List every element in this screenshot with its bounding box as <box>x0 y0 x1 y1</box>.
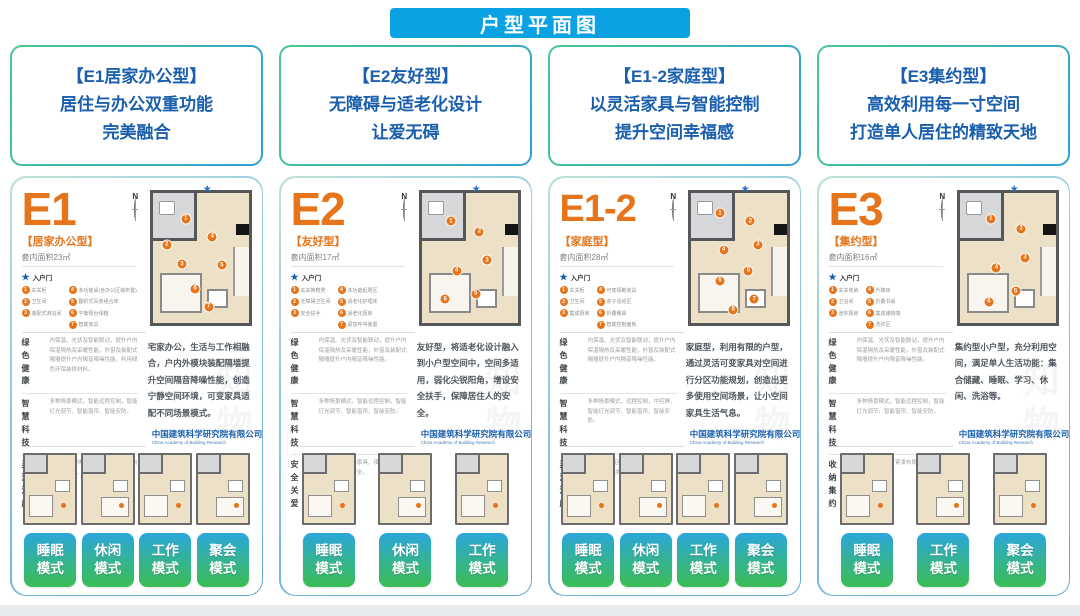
legend-text: 可变隔断家具 <box>607 287 637 294</box>
main-floorplan: ★ 12345678 <box>688 190 789 326</box>
thumbnail-tbl <box>228 480 243 492</box>
legend-number: 1 <box>291 286 299 294</box>
legend-number: 6 <box>866 309 874 317</box>
legend-number: 3 <box>22 309 30 317</box>
section-label-line2: 科 技 <box>829 425 839 447</box>
thumbnail-bed <box>846 495 870 517</box>
legend-item: 7智能家具 <box>69 321 137 329</box>
thumbnail-bed <box>754 497 782 517</box>
mode-badge: 休闲模式 <box>82 533 134 587</box>
thumbnail-dot <box>772 503 777 508</box>
plan-entry-star-icon: ★ <box>1010 185 1019 195</box>
legend-item: 3集成厨房 <box>560 309 590 317</box>
thumbnail-tbl <box>410 480 425 492</box>
intro-card-line: 打造单人居住的精致天地 <box>850 122 1037 145</box>
legend-item: 1玄关换鞋凳 <box>291 286 331 294</box>
legend-number: 7 <box>866 321 874 329</box>
mode-badge: 睡眠模式 <box>841 533 893 587</box>
section-label-line1: 绿 色 <box>22 338 32 360</box>
section-label: 智 慧 科 技 <box>560 398 584 449</box>
section-text: 多种情景模式，智能远程控制，智能灯光调节、智能窗帘、智能安防。 <box>857 398 946 449</box>
mode-badge-label: 工作 <box>930 542 957 560</box>
compass-circle <box>672 200 674 219</box>
intro-card-title: 【E2友好型】 <box>353 66 459 89</box>
compass-circle <box>134 200 136 219</box>
section-label: 绿 色 健 康 <box>22 337 46 388</box>
panel-right-column: 友好型，将适老化设计融入到小户型空间中，空间多适用，弱化尖锐阳角，增设安全扶手，… <box>415 332 521 447</box>
thumbnail-bed <box>216 497 244 517</box>
legend-number: 4 <box>597 286 605 294</box>
legend-column-left: 1玄关柜2卫生间3集成厨房 <box>560 286 590 329</box>
plan-marker: 1 <box>986 214 995 223</box>
section-label-line1: 绿 色 <box>829 338 839 360</box>
thumbnail-bath <box>140 455 163 475</box>
legend-text: 平衡阳台绿植 <box>79 310 109 317</box>
plan-marker: 3 <box>1021 253 1030 262</box>
intro-card-line: 居住与办公双重功能 <box>60 94 213 117</box>
mode-badge-suffix: 模式 <box>853 560 880 578</box>
legend-text: 多功能桌(含办公区域布置) <box>79 287 137 294</box>
plan-entry-star-icon: ★ <box>203 185 212 195</box>
mode-badge-label: 睡眠 <box>315 542 342 560</box>
legend-item: 1玄关柜 <box>560 286 590 294</box>
legend-item: 5适老化护理床 <box>338 298 378 306</box>
plan-marker: 3 <box>177 260 186 269</box>
compass-circle <box>941 200 943 219</box>
floorplan-thumbnails <box>829 453 1059 525</box>
thumbnail-bath <box>304 455 327 475</box>
legend-number: 7 <box>597 321 605 329</box>
panel-middle: 绿 色 健 康 内保温、光伏及智能联动，提升户内保温隔热及采暖性能，外窗及装配式… <box>829 332 1059 447</box>
entry-star-icon: ★ <box>560 273 568 282</box>
legend-text: 折叠书桌 <box>876 298 896 305</box>
plan-marker: 1 <box>446 217 455 226</box>
entry-star-icon: ★ <box>829 273 837 282</box>
page-title-banner: 户型平面图 <box>390 8 690 38</box>
section-label: 绿 色 健 康 <box>291 337 315 388</box>
thumbnail-bed <box>101 497 129 517</box>
mode-badge-label: 休闲 <box>392 542 419 560</box>
thumbnail-bath <box>457 455 480 475</box>
panel-area: 套内面积28㎡ <box>560 252 674 267</box>
legend-number: 7 <box>69 321 77 329</box>
floorplan-thumbnail <box>993 453 1047 525</box>
panel-middle: 绿 色 健 康 内保温、光伏及智能联动，提升户内保温隔热及采暖性能，外窗及装配式… <box>560 332 790 447</box>
plan-marker: 1 <box>715 209 724 218</box>
floorplan-panel-body: 知物 E1-2 【家庭型】 套内面积28㎡ ★ 入户门 1玄关柜2卫生间3集成厨… <box>550 178 800 595</box>
mode-badge-suffix: 模式 <box>209 560 236 578</box>
org-name-cn: 中国建筑科学研究院有限公司 <box>690 430 800 440</box>
entry-label: 入户门 <box>33 272 53 282</box>
section-label: 绿 色 健 康 <box>560 337 584 388</box>
intro-card-line: 让爱无碍 <box>372 122 440 145</box>
legend-item: 1玄关收纳 <box>829 286 859 294</box>
mode-badge: 工作模式 <box>677 533 729 587</box>
panel-description: 友好型，将适老化设计融入到小户型空间中，空间多适用，弱化尖锐阳角，增设安全扶手，… <box>417 339 521 422</box>
intro-card: 【E2友好型】 无障碍与适老化设计 让爱无碍 <box>279 45 532 166</box>
entry-label: 入户门 <box>571 272 591 282</box>
legend-text: 多功能起居区 <box>348 287 378 294</box>
plan-marker: 4 <box>992 263 1001 272</box>
entry-row: ★ 入户门 <box>291 272 415 282</box>
legend-item: 4可变隔断家具 <box>597 286 637 294</box>
mode-badge: 睡眠模式 <box>303 533 355 587</box>
main-floorplan: ★ 1234567 <box>150 190 251 326</box>
legend-item: 7紧急呼叫装置 <box>338 321 378 329</box>
mode-badge-label: 聚会 <box>747 542 774 560</box>
panel-subtitle: 【集约型】 <box>829 233 953 249</box>
plan-bathroom <box>422 193 466 242</box>
thumbnail-bath <box>563 455 586 475</box>
legend-number: 2 <box>291 298 299 306</box>
legend-item: 2无障碍卫生间 <box>291 298 331 306</box>
legend-text: 升降床 <box>876 287 891 294</box>
section-text: 内保温、光伏及智能联动，提升户内保温隔热及采暖性能，外窗及装配式隔墙提升户内隔音… <box>50 337 139 388</box>
legend-item: 3迷你厨房 <box>829 309 859 317</box>
legend-text: 智能控制面板 <box>607 321 637 328</box>
mode-badge-suffix: 模式 <box>469 560 496 578</box>
section-label-line2: 科 技 <box>291 425 301 447</box>
thumbnail-dot <box>878 503 883 508</box>
main-floorplan: ★ 123456 <box>957 190 1058 326</box>
legend-number: 5 <box>866 298 874 306</box>
section-row: 绿 色 健 康 内保温、光伏及智能联动，提升户内保温隔热及采暖性能，外窗及装配式… <box>291 333 408 393</box>
plan-marker: 5 <box>217 261 226 270</box>
plan-entry-star-icon: ★ <box>472 185 481 195</box>
panel-subtitle: 【家庭型】 <box>560 233 684 249</box>
org-logo-text: 中国建筑科学研究院有限公司 China Academy of Building … <box>959 430 1069 446</box>
section-text: 内保温、光伏及智能联动，提升户内保温隔热及采暖性能，外窗及装配式隔墙提升户内隔音… <box>588 337 677 388</box>
intro-card-body: 【E1居家办公型】 居住与办公双重功能 完美融合 <box>12 47 261 164</box>
panel-right-column: 集约型小户型，充分利用空间，满足单人生活功能：集合储藏、睡眠、学习、休闲、洗浴等… <box>953 332 1059 447</box>
compass-icon: N <box>396 192 412 219</box>
thumbnail-tbl <box>170 480 185 492</box>
plan-marker: 7 <box>204 302 213 311</box>
mode-badge: 工作模式 <box>139 533 191 587</box>
panel-right-column: 宅家办公，生活与工作相融合，户内外模块装配隔墙提升空间隔音降噪性能，创造宁静空间… <box>146 332 252 447</box>
mode-badge-suffix: 模式 <box>94 560 121 578</box>
thumbnail-dot <box>1031 503 1036 508</box>
legend-number: 4 <box>69 286 77 294</box>
intro-card: 【E3集约型】 高效利用每一寸空间 打造单人居住的精致天地 <box>817 45 1070 166</box>
legend-text: 迷你厨房 <box>839 310 859 317</box>
plan-marker: 4 <box>719 245 728 254</box>
legend-number: 4 <box>866 286 874 294</box>
legend-number: 3 <box>829 309 837 317</box>
legend-number: 6 <box>597 309 605 317</box>
legend-text: 适老化护理床 <box>348 298 378 305</box>
mode-badges: 睡眠模式休闲模式工作模式 <box>291 533 521 587</box>
panel-description: 宅家办公，生活与工作相融合，户内外模块装配隔墙提升空间隔音降噪性能，创造宁静空间… <box>148 339 252 422</box>
compass-circle <box>403 200 405 219</box>
section-label-line2: 科 技 <box>22 425 32 447</box>
section-label-line1: 智 慧 <box>829 399 839 421</box>
mode-badge: 工作模式 <box>456 533 508 587</box>
legend-item: 1玄关柜 <box>22 286 62 294</box>
org-logo: 中国建筑科学研究院有限公司 China Academy of Building … <box>417 430 521 447</box>
mode-badge-suffix: 模式 <box>930 560 957 578</box>
org-logo: 中国建筑科学研究院有限公司 China Academy of Building … <box>955 430 1059 447</box>
thumbnail-bed <box>639 497 667 517</box>
org-logo-text: 中国建筑科学研究院有限公司 China Academy of Building … <box>152 430 262 446</box>
legend-text: 集成厨房 <box>570 310 590 317</box>
legend-number: 1 <box>829 286 837 294</box>
section-text: 多种情景模式，智能远程控制，智能灯光调节、智能窗帘、智能安防。 <box>319 398 408 449</box>
entry-row: ★ 入户门 <box>829 272 953 282</box>
legend-number: 7 <box>338 321 346 329</box>
plan-legend: ★ 入户门 1玄关柜2卫生间3集成厨房 4可变隔断家具5亲子活动区6折叠餐桌7智… <box>560 272 684 329</box>
floorplan-panel: 知物 E3 【集约型】 套内面积16㎡ ★ 入户门 1玄关收纳2卫浴间3迷你厨房… <box>817 176 1070 596</box>
mode-badge-label: 聚会 <box>209 542 236 560</box>
mode-badges: 睡眠模式休闲模式工作模式聚会模式 <box>560 533 790 587</box>
mode-badges: 睡眠模式休闲模式工作模式聚会模式 <box>22 533 252 587</box>
legend-number: 2 <box>829 298 837 306</box>
legend-text: 翻折式百变组合床 <box>79 298 119 305</box>
intro-card-body: 【E3集约型】 高效利用每一寸空间 打造单人居住的精致天地 <box>819 47 1068 164</box>
thumbnail-bed <box>682 495 706 517</box>
mode-badge-label: 聚会 <box>1007 542 1034 560</box>
thumbnail-bed <box>936 497 964 517</box>
floorplan-panel-body: 知物 E1 【居家办公型】 套内面积23㎡ ★ 入户门 1玄关柜2卫生间3装配式… <box>12 178 262 595</box>
org-name-en: China Academy of Building Research <box>421 440 531 445</box>
org-name-cn: 中国建筑科学研究院有限公司 <box>959 430 1069 440</box>
compass-icon: N <box>665 192 681 219</box>
panel-description: 家庭型，利用有限的户型，通过灵活可变家具对空间进行分区功能规划，创造出更多使用空… <box>686 339 790 422</box>
mode-badge-suffix: 模式 <box>575 560 602 578</box>
floorplan-panel-body: 知物 E2 【友好型】 套内面积17㎡ ★ 入户门 1玄关换鞋凳2无障碍卫生间3… <box>281 178 531 595</box>
thumbnail-tbl <box>1025 480 1040 492</box>
thumbnail-dot <box>234 503 239 508</box>
floorplan-thumbnail <box>81 453 135 525</box>
legend-item: 4升降床 <box>866 286 901 294</box>
thumbnail-bath <box>83 455 106 475</box>
plan-balcony <box>502 247 517 296</box>
section-label-line1: 智 慧 <box>560 399 570 421</box>
legend-item: 7智能控制面板 <box>597 321 637 329</box>
plan-marker: 4 <box>452 266 461 275</box>
legend-item: 6集成储物墙 <box>866 309 901 317</box>
section-label-line1: 绿 色 <box>291 338 301 360</box>
legend-text: 装配式淋浴间 <box>32 310 62 317</box>
legend-number: 3 <box>560 309 568 317</box>
section-row: 绿 色 健 康 内保温、光伏及智能联动，提升户内保温隔热及采暖性能，外窗及装配式… <box>560 333 677 393</box>
legend-text: 集成储物墙 <box>876 310 901 317</box>
mode-badges: 睡眠模式工作模式聚会模式 <box>829 533 1059 587</box>
section-text: 内保温、光伏及智能联动，提升户内保温隔热及采暖性能，外窗及装配式隔墙提升户内隔音… <box>319 337 408 388</box>
plan-shaft <box>1043 224 1055 236</box>
section-row: 智 慧 科 技 多种情景模式，远程控制，中控屏、智能灯光调节、智能窗帘、智能安防… <box>560 393 677 454</box>
thumbnail-bath <box>380 455 403 475</box>
mode-badge-suffix: 模式 <box>690 560 717 578</box>
legend-item: 6平衡阳台绿植 <box>69 309 137 317</box>
legend-number: 1 <box>560 286 568 294</box>
intro-card-title: 【E1居家办公型】 <box>67 66 207 89</box>
intro-card-title: 【E3集约型】 <box>891 66 997 89</box>
mode-badge-label: 休闲 <box>632 542 659 560</box>
thumbnail-dot <box>176 503 181 508</box>
section-label-line2: 健 康 <box>291 364 301 386</box>
plan-marker: 7 <box>750 295 759 304</box>
legend-column-right: 4多功能桌(含办公区域布置)5翻折式百变组合床6平衡阳台绿植7智能家具 <box>69 286 137 329</box>
floorplan-panel: 知物 E1-2 【家庭型】 套内面积28㎡ ★ 入户门 1玄关柜2卫生间3集成厨… <box>548 176 801 596</box>
mode-badge-suffix: 模式 <box>747 560 774 578</box>
org-logo: 中国建筑科学研究院有限公司 China Academy of Building … <box>686 430 790 447</box>
thumbnail-bath <box>995 455 1018 475</box>
floorplan-thumbnail <box>302 453 356 525</box>
legend-number: 2 <box>560 298 568 306</box>
panel-description: 集约型小户型，充分利用空间，满足单人生活功能：集合储藏、睡眠、学习、休闲、洗浴等… <box>955 339 1059 405</box>
feature-sections: 绿 色 健 康 内保温、光伏及智能联动，提升户内保温隔热及采暖性能，外窗及装配式… <box>22 332 146 447</box>
org-logo: 中国建筑科学研究院有限公司 China Academy of Building … <box>148 430 252 447</box>
floorplan-panel: 知物 E2 【友好型】 套内面积17㎡ ★ 入户门 1玄关换鞋凳2无障碍卫生间3… <box>279 176 532 596</box>
plan-marker: 5 <box>471 289 480 298</box>
legend-number: 6 <box>338 309 346 317</box>
intro-card-line: 提升空间幸福感 <box>615 122 734 145</box>
floorplan-thumbnail <box>561 453 615 525</box>
legend-number: 1 <box>22 286 30 294</box>
thumbnail-tbl <box>113 480 128 492</box>
thumbnail-dot <box>493 503 498 508</box>
thumbnail-tbl <box>487 480 502 492</box>
plan-marker: 5 <box>1011 287 1020 296</box>
thumbnail-bath <box>918 455 941 475</box>
plan-marker: 6 <box>191 284 200 293</box>
thumbnail-tbl <box>766 480 781 492</box>
mode-badge-label: 睡眠 <box>853 542 880 560</box>
section-label: 智 慧 科 技 <box>22 398 46 449</box>
mode-badge: 休闲模式 <box>620 533 672 587</box>
plan-marker: 6 <box>441 295 450 304</box>
section-label-line2: 健 康 <box>829 364 839 386</box>
thumbnail-tbl <box>55 480 70 492</box>
section-text: 多种情景模式，智能远程控制，智能灯光调节、智能窗帘、智能安防。 <box>50 398 139 449</box>
section-row: 绿 色 健 康 内保温、光伏及智能联动，提升户内保温隔热及采暖性能，外窗及装配式… <box>829 333 946 393</box>
thumbnail-dot <box>714 503 719 508</box>
thumbnail-tbl <box>593 480 608 492</box>
plan-marker: 6 <box>984 297 993 306</box>
intro-card-body: 【E1-2家庭型】 以灵活家具与智能控制 提升空间幸福感 <box>550 47 799 164</box>
mode-badge-suffix: 模式 <box>392 560 419 578</box>
mode-badge-label: 睡眠 <box>575 542 602 560</box>
thumbnail-dot <box>599 503 604 508</box>
thumbnail-bath <box>736 455 759 475</box>
section-label-line1: 智 慧 <box>22 399 32 421</box>
mode-badge-suffix: 模式 <box>152 560 179 578</box>
org-name-cn: 中国建筑科学研究院有限公司 <box>421 430 531 440</box>
floorplan-panel-row: 知物 E1 【居家办公型】 套内面积23㎡ ★ 入户门 1玄关柜2卫生间3装配式… <box>0 176 1080 596</box>
plan-balcony <box>233 247 248 296</box>
intro-card: 【E1-2家庭型】 以灵活家具与智能控制 提升空间幸福感 <box>548 45 801 166</box>
legend-number: 5 <box>597 298 605 306</box>
mode-badge-suffix: 模式 <box>1007 560 1034 578</box>
mode-badge: 休闲模式 <box>379 533 431 587</box>
plan-marker: 2 <box>475 227 484 236</box>
legend-text: 亲子活动区 <box>607 298 632 305</box>
thumbnail-bed <box>461 495 485 517</box>
thumbnail-dot <box>340 503 345 508</box>
plan-bed <box>429 273 471 313</box>
mode-badge-label: 工作 <box>469 542 496 560</box>
thumbnail-bath <box>678 455 701 475</box>
plan-bathroom <box>960 193 1004 242</box>
intro-card-line: 以灵活家具与智能控制 <box>590 94 760 117</box>
plan-marker: 3 <box>753 240 762 249</box>
panel-area: 套内面积16㎡ <box>829 252 943 267</box>
plan-legend: ★ 入户门 1玄关收纳2卫浴间3迷你厨房 4升降床5折叠书桌6集成储物墙7洗衣区 <box>829 272 953 329</box>
intro-card: 【E1居家办公型】 居住与办公双重功能 完美融合 <box>10 45 263 166</box>
legend-text: 玄关换鞋凳 <box>301 287 326 294</box>
compass-icon: N <box>934 192 950 219</box>
intro-card-line: 完美融合 <box>103 122 171 145</box>
plan-balcony <box>771 247 786 296</box>
legend-column-left: 1玄关换鞋凳2无障碍卫生间3安全扶手 <box>291 286 331 329</box>
plan-marker: 3 <box>483 256 492 265</box>
panel-middle: 绿 色 健 康 内保温、光伏及智能联动，提升户内保温隔热及采暖性能，外窗及装配式… <box>22 332 252 447</box>
section-text: 多种情景模式，远程控制，中控屏、智能灯光调节、智能窗帘、智能安防。 <box>588 398 677 449</box>
legend-item: 3安全扶手 <box>291 309 331 317</box>
section-label-line2: 健 康 <box>22 364 32 386</box>
plan-marker: 2 <box>1017 224 1026 233</box>
panel-subtitle: 【友好型】 <box>291 233 415 249</box>
panel-header: E2 【友好型】 套内面积17㎡ ★ 入户门 1玄关换鞋凳2无障碍卫生间3安全扶… <box>291 188 521 328</box>
main-floorplan: ★ 123456 <box>419 190 520 326</box>
mode-badge: 聚会模式 <box>735 533 787 587</box>
legend-number: 2 <box>22 298 30 306</box>
floorplan-thumbnails <box>560 453 790 525</box>
intro-card-row: 【E1居家办公型】 居住与办公双重功能 完美融合 【E2友好型】 无障碍与适老化… <box>0 45 1080 166</box>
thumbnail-bed <box>144 495 168 517</box>
plan-bathroom <box>691 193 735 242</box>
legend-text: 无障碍卫生间 <box>301 298 331 305</box>
legend-item: 2卫生间 <box>22 298 62 306</box>
section-label-line2: 科 技 <box>560 425 570 447</box>
floorplan-thumbnail <box>840 453 894 525</box>
thumbnail-bed <box>308 495 332 517</box>
legend-item: 7洗衣区 <box>866 321 901 329</box>
thumbnail-tbl <box>948 480 963 492</box>
mode-badge-suffix: 模式 <box>315 560 342 578</box>
floorplan-panel-body: 知物 E3 【集约型】 套内面积16㎡ ★ 入户门 1玄关收纳2卫浴间3迷你厨房… <box>819 178 1069 595</box>
legend-item: 4多功能桌(含办公区域布置) <box>69 286 137 294</box>
thumbnail-bed <box>999 495 1023 517</box>
feature-sections: 绿 色 健 康 内保温、光伏及智能联动，提升户内保温隔热及采暖性能，外窗及装配式… <box>291 332 415 447</box>
floorplan-thumbnail <box>378 453 432 525</box>
plan-bathroom <box>153 193 197 242</box>
legend-text: 卫浴间 <box>839 298 854 305</box>
plan-entry-star-icon: ★ <box>741 185 750 195</box>
legend-text: 折叠餐桌 <box>607 310 627 317</box>
mode-badge: 睡眠模式 <box>562 533 614 587</box>
mode-badge: 聚会模式 <box>197 533 249 587</box>
thumbnail-bath <box>198 455 221 475</box>
section-text: 内保温、光伏及智能联动，提升户内保温隔热及采暖性能，外窗及装配式隔墙提升户内隔音… <box>857 337 946 388</box>
plan-legend: ★ 入户门 1玄关换鞋凳2无障碍卫生间3安全扶手 4多功能起居区5适老化护理床6… <box>291 272 415 329</box>
legend-text: 卫生间 <box>32 298 47 305</box>
legend-text: 安全扶手 <box>301 310 321 317</box>
legend-item: 2卫生间 <box>560 298 590 306</box>
legend-text: 洗衣区 <box>876 321 891 328</box>
plan-marker: 2 <box>162 240 171 249</box>
legend-column-left: 1玄关收纳2卫浴间3迷你厨房 <box>829 286 859 329</box>
floorplan-thumbnail <box>455 453 509 525</box>
floorplan-thumbnail <box>916 453 970 525</box>
entry-label: 入户门 <box>302 272 322 282</box>
mode-badge: 睡眠模式 <box>24 533 76 587</box>
legend-text: 紧急呼叫装置 <box>348 321 378 328</box>
mode-badge-label: 睡眠 <box>37 542 64 560</box>
entry-star-icon: ★ <box>22 273 30 282</box>
thumbnail-bed <box>29 495 53 517</box>
